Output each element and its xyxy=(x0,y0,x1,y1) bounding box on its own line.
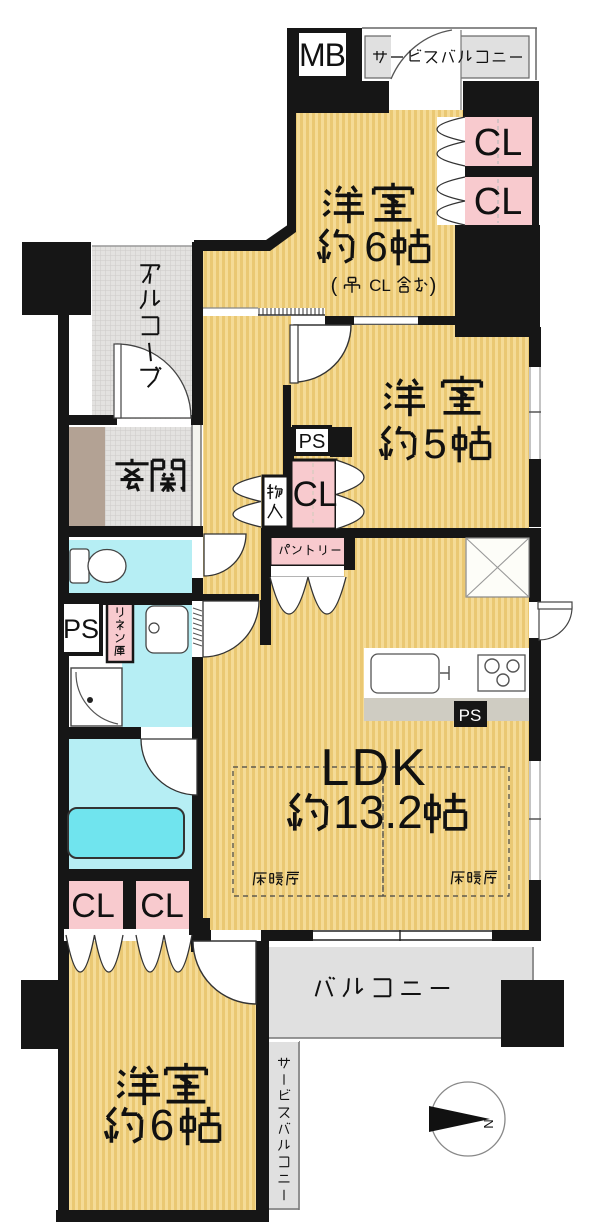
svg-text:6: 6 xyxy=(150,1101,174,1150)
svg-text:6: 6 xyxy=(364,223,387,270)
svg-text:PS: PS xyxy=(63,614,99,644)
svg-text:CL: CL xyxy=(293,475,338,514)
svg-text:PS: PS xyxy=(459,706,482,725)
svg-text:CL: CL xyxy=(474,122,523,164)
svg-text:CL: CL xyxy=(369,276,391,295)
svg-text:CL: CL xyxy=(71,887,114,925)
svg-text:CL: CL xyxy=(140,887,183,925)
svg-text:CL: CL xyxy=(474,181,523,223)
svg-text:N: N xyxy=(481,1119,496,1128)
svg-text:13.2: 13.2 xyxy=(333,786,423,838)
svg-text:PS: PS xyxy=(299,431,326,453)
svg-text:): ) xyxy=(430,275,437,297)
svg-text:(: ( xyxy=(331,275,338,297)
svg-text:MB: MB xyxy=(299,37,345,73)
svg-text:5: 5 xyxy=(423,420,446,467)
